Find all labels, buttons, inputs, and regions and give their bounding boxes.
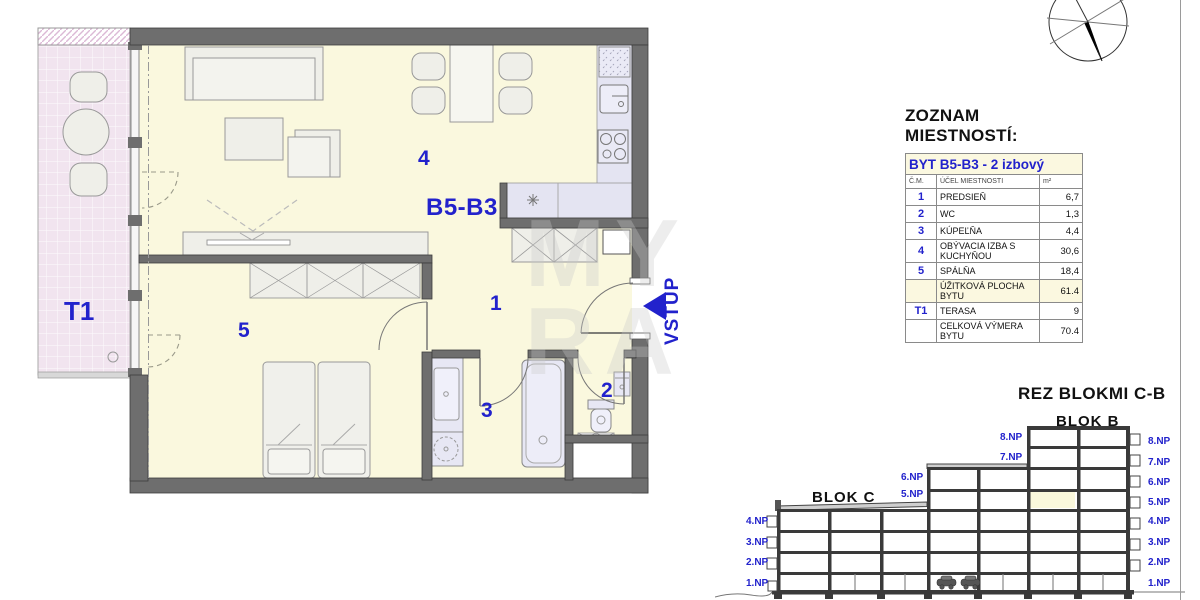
floor-label-left: 3.NP [746,538,768,548]
room-label-wc: 2 [601,380,613,401]
room-label-hall: 1 [490,293,502,314]
floor-label-right: 3.NP [1148,538,1170,548]
bath-sink-icon [430,357,463,432]
floor-plan [0,0,720,600]
table-row: 4OBÝVACIA IZBA S KUCHYŇOU30,6 [906,240,1083,263]
blok-b-label: BLOK B [1056,414,1120,429]
bedroom-wardrobe [250,263,420,298]
floor-label-right: 5.NP [1148,498,1170,508]
compass-icon [1040,0,1140,67]
washing-machine-icon [430,432,463,466]
hall-wardrobe [512,228,597,262]
sheet-border-line [1180,0,1181,600]
room-label-bedroom: 5 [238,320,250,341]
armchair [288,130,340,177]
right-balconies [1130,434,1140,571]
floor-label-right: 7.NP [1148,458,1170,468]
table-row: 1PREDSIEŇ6,7 [906,189,1083,206]
building-section [715,370,1200,600]
sofa [185,47,323,100]
room-table-title: ZOZNAM MIESTNOSTÍ: [905,106,1085,146]
table-row-subtotal: ÚŽITKOVÁ PLOCHA BYTU61.4 [906,280,1083,303]
highlighted-unit [1029,491,1075,508]
room-label-living: 4 [418,148,430,169]
room-list: BYT B5-B3 - 2 izbový Č.M. ÚČEL MIESTNOST… [905,153,1083,343]
terrace-label: T1 [64,298,94,324]
floor-label-mid: 6.NP [901,473,923,483]
architectural-sheet: 4 B5-B3 1 5 3 2 T1 VSTUP MY RA ZOZNAM MI… [0,0,1200,600]
floor-label-right: 1.NP [1148,579,1170,589]
table-row: T1TERASA9 [906,303,1083,320]
room-label-bath: 3 [481,400,493,421]
apartment-label: B5-B3 [426,196,498,220]
fridge-icon [599,47,630,77]
shaft [603,230,630,254]
floor-label-right: 6.NP [1148,478,1170,488]
apartment-header: BYT B5-B3 - 2 izbový [906,154,1083,175]
entrance-label: VSTUP [662,265,684,345]
toilet-icon [588,400,614,432]
col-name: ÚČEL MIESTNOSTI [937,175,1040,189]
floor-label-left: 1.NP [746,579,768,589]
car-icons [937,576,980,589]
table-row-total: CELKOVÁ VÝMERA BYTU70.4 [906,320,1083,343]
left-balconies [767,516,777,591]
col-area: m² [1040,175,1083,189]
stove-icon [598,130,628,163]
table-row: 3KÚPEĽŇA4,4 [906,223,1083,240]
floor-label-mid: 8.NP [1000,433,1022,443]
floor-label-right: 2.NP [1148,558,1170,568]
floor-label-left: 2.NP [746,558,768,568]
blok-c-label: BLOK C [812,490,876,505]
room-table: ZOZNAM MIESTNOSTÍ: BYT B5-B3 - 2 izbový … [905,106,1085,343]
table-row: 5SPÁLŇA18,4 [906,263,1083,280]
table-row: 2WC1,3 [906,206,1083,223]
floor-label-mid: 7.NP [1000,453,1022,463]
coffee-table [225,118,283,160]
floor-label-mid: 5.NP [901,490,923,500]
terrace-furniture [63,72,109,196]
wc-sink-icon [614,372,630,396]
floor-label-right: 4.NP [1148,517,1170,527]
bathtub-icon [522,360,565,467]
floor-label-left: 4.NP [746,517,768,527]
col-num: Č.M. [906,175,937,189]
sink-icon [600,85,628,113]
floor-label-right: 8.NP [1148,437,1170,447]
